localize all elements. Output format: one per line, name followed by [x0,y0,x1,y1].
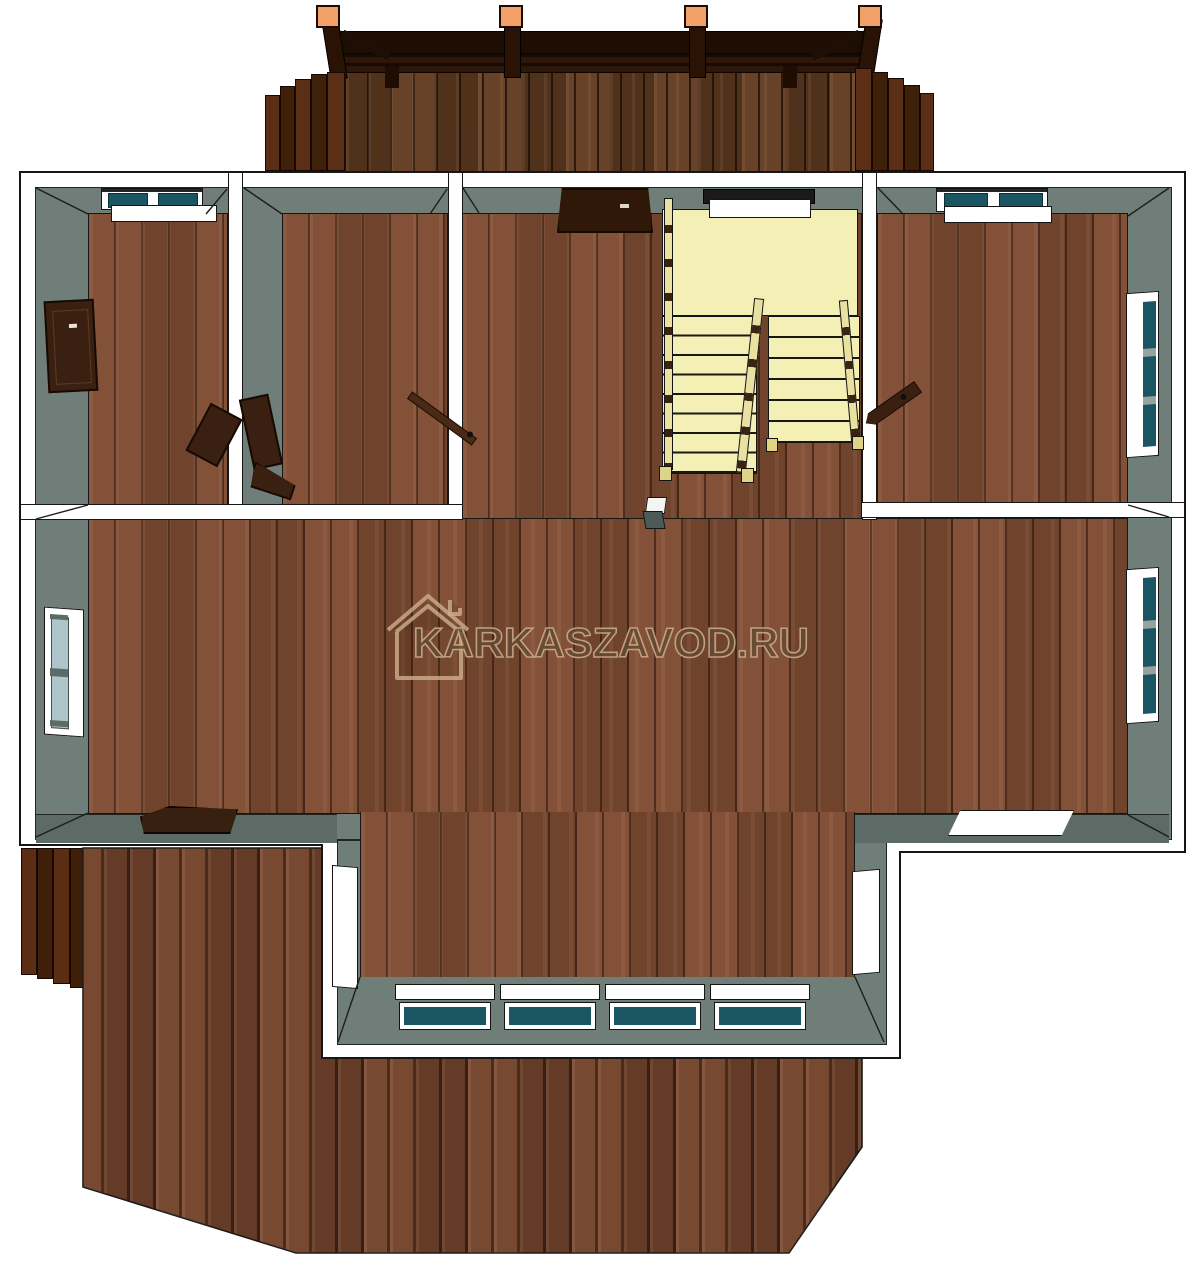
floor-living-room [88,518,1128,814]
door-room1-left-wall [44,299,99,393]
floor-plan-render: KARKASZAVOD.RU [0,0,1200,1269]
window-flat-bottom-right [948,810,1074,836]
bay-glazed-panel [500,984,600,1000]
stair-newel [852,436,864,450]
watermark-text: KARKASZAVOD.RU [413,622,809,664]
window-bay-left [332,865,358,989]
window-right-wall-lower [1126,567,1159,724]
partition-room1-room2 [228,172,243,520]
window-right-wall-upper [1126,291,1159,458]
bay-glazed-panel-glass [399,1002,491,1030]
partition-horizontal-right [861,502,1185,518]
floor-room-top-middle [282,213,448,516]
stair-newel [766,438,778,452]
bay-glazed-panel [710,984,810,1000]
bay-glazed-panel [605,984,705,1000]
bay-glazed-panel-glass [504,1002,596,1030]
bay-glazed-panel [395,984,495,1000]
floor-room-top-left [88,213,228,516]
bay-glazed-panel-glass [609,1002,701,1030]
stair-newel [741,468,754,483]
floor-bay-room [360,812,855,977]
window-room1-top-sill [111,205,217,222]
window-room-right-top-sill [944,206,1052,223]
bay-glazed-panel-glass [714,1002,806,1030]
partition-room2-hall [448,172,463,520]
floor-room-top-right [877,213,1128,516]
partition-stairs-room-right [862,172,877,520]
window-left-wall [44,607,84,738]
door-hallway-top [557,188,653,233]
column [644,497,668,530]
partition-horizontal-left [20,504,463,520]
window-bay-right [852,869,880,975]
stairwell-window-sill [709,199,811,218]
stair-rail-left [664,198,673,470]
stair-newel [659,466,672,481]
